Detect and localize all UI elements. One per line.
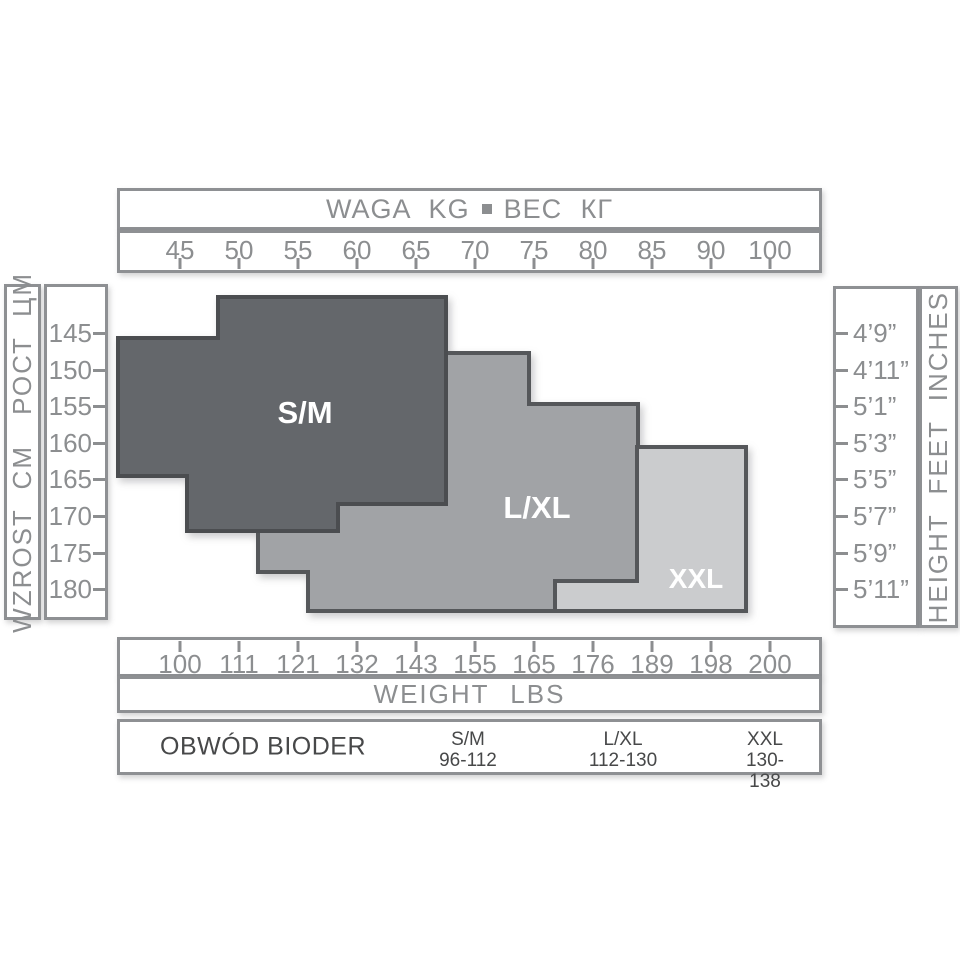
lbs-tick-label: 176: [571, 651, 614, 677]
lbs-tick-label: 132: [335, 651, 378, 677]
lbs-tick-label: 155: [453, 651, 496, 677]
hip-size-table: OBWÓD BIODER S/M96-112L/XL112-130XXL130-…: [117, 719, 822, 775]
lbs-tick-label: 165: [512, 651, 555, 677]
lbs-tick-label: 143: [394, 651, 437, 677]
lbs-tick-label: 189: [630, 651, 673, 677]
size-regions-plot: L/XLXXLS/M: [0, 0, 960, 960]
bottom-axis-title-box: WEIGHT LBS: [117, 676, 822, 713]
hip-table-range-value: 112-130: [589, 750, 657, 771]
hip-table-size-label: S/M: [439, 729, 497, 750]
size-chart: WAGA KG ВЕС КГ 45505560657075808590100 Р…: [0, 0, 960, 960]
hip-table-column: S/M96-112: [439, 729, 497, 771]
hip-table-range-value: 130-138: [738, 750, 792, 792]
lbs-tick-label: 111: [219, 651, 259, 677]
hip-table-column: XXL130-138: [738, 729, 792, 792]
hip-table-column: L/XL112-130: [589, 729, 657, 771]
lbs-tick-label: 200: [748, 651, 791, 677]
bottom-axis-title: WEIGHT LBS: [374, 679, 566, 710]
size-region-label: L/XL: [503, 490, 570, 525]
size-region-label: XXL: [669, 563, 723, 594]
lbs-tick-label: 100: [158, 651, 201, 677]
lbs-tick-label: 121: [276, 651, 319, 677]
hip-table-size-label: L/XL: [589, 729, 657, 750]
hip-table-size-label: XXL: [738, 729, 792, 750]
size-region-label: S/M: [277, 395, 332, 430]
hip-table-row-label: OBWÓD BIODER: [160, 733, 366, 762]
bottom-axis-lbs-scale: 100111121132143155165176189198200: [117, 637, 822, 677]
lbs-tick-label: 198: [689, 651, 732, 677]
hip-table-range-value: 96-112: [439, 750, 497, 771]
